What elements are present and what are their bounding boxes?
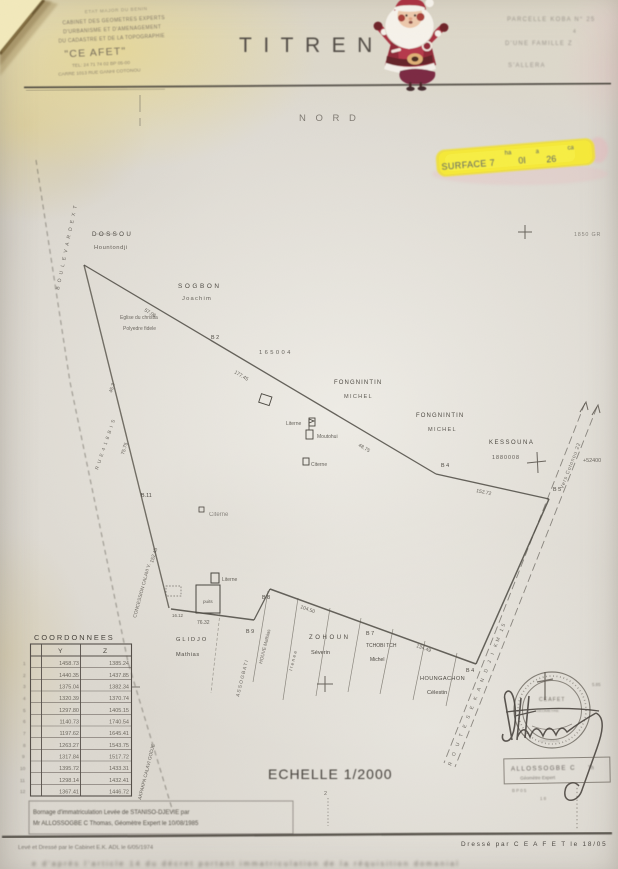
- svg-text:B P 0 5: B P 0 5: [512, 788, 527, 793]
- svg-text:1: 1: [23, 661, 26, 667]
- svg-text:FONGNINTIN: FONGNINTIN: [416, 413, 464, 419]
- svg-text:57.06: 57.06: [143, 308, 157, 320]
- svg-text:a: a: [535, 149, 539, 155]
- svg-text:Michel: Michel: [370, 657, 384, 663]
- svg-text:3: 3: [23, 684, 26, 690]
- svg-text:Eglise du christia: Eglise du christia: [120, 315, 158, 321]
- svg-text:GLIDJO: GLIDJO: [176, 637, 208, 643]
- svg-text:48.75: 48.75: [357, 443, 371, 455]
- svg-text:Citerne: Citerne: [311, 462, 327, 468]
- svg-text:104.50: 104.50: [299, 604, 316, 615]
- svg-text:B 5: B 5: [553, 487, 561, 493]
- svg-text:ca: ca: [567, 145, 574, 152]
- svg-text:Z: Z: [103, 648, 107, 655]
- svg-text:"CE AFET": "CE AFET": [64, 45, 127, 60]
- svg-text:1 8: 1 8: [540, 796, 547, 801]
- svg-text:1197.62: 1197.62: [60, 731, 79, 737]
- svg-text:GEOMETRE: GEOMETRE: [536, 708, 559, 713]
- svg-text:10: 10: [20, 766, 26, 772]
- svg-text:1432.41: 1432.41: [109, 778, 129, 784]
- svg-text:1320.39: 1320.39: [59, 696, 79, 702]
- svg-text:1740.54: 1740.54: [109, 720, 129, 726]
- svg-text:AKPAKPA CALAVI GODJE: AKPAKPA CALAVI GODJE: [137, 743, 157, 800]
- svg-text:12: 12: [20, 789, 26, 795]
- svg-text:D'UNE FAMILLE Z: D'UNE FAMILLE Z: [505, 41, 573, 47]
- svg-text:A S S O G B A T I: A S S O G B A T I: [235, 660, 250, 698]
- svg-text:165004: 165004: [259, 350, 293, 356]
- svg-text:COTONOU: COTONOU: [540, 739, 560, 743]
- svg-text:DU CADASTRE ET DE LA TOPOGRAPH: DU CADASTRE ET DE LA TOPOGRAPHIE: [58, 33, 165, 45]
- svg-text:PARCELLE KOBA N° 25: PARCELLE KOBA N° 25: [507, 17, 595, 23]
- svg-text:Moutohui: Moutohui: [317, 434, 338, 440]
- svg-text:Vers Cotonou 22: Vers Cotonou 22: [559, 442, 582, 490]
- svg-text:1375.04: 1375.04: [59, 685, 79, 691]
- svg-text:B 4: B 4: [441, 463, 449, 469]
- svg-text:B 7: B 7: [366, 631, 374, 637]
- svg-text:S'ALLERA: S'ALLERA: [508, 63, 546, 69]
- svg-text:I r e n e e: I r e n e e: [288, 650, 299, 671]
- svg-text:152.45: 152.45: [149, 547, 159, 564]
- svg-text:1437.85: 1437.85: [109, 673, 129, 679]
- svg-text:Mathias: Mathias: [176, 652, 200, 658]
- svg-text:R O U T E S E K A N D J I: R O U T E S E K A N D J I KM 15: [447, 620, 508, 766]
- svg-text:ha: ha: [504, 150, 512, 157]
- svg-text:ETAT MAJOR DU BENIN: ETAT MAJOR DU BENIN: [85, 6, 148, 14]
- svg-text:Géomètre Expert: Géomètre Expert: [520, 775, 556, 781]
- svg-text:152.72: 152.72: [476, 488, 492, 497]
- svg-text:CEAFET: CEAFET: [539, 697, 565, 703]
- svg-text:45.3: 45.3: [108, 382, 117, 393]
- svg-text:1298.14: 1298.14: [59, 778, 79, 784]
- svg-text:Hountondji: Hountondji: [94, 245, 128, 251]
- svg-text:Joachim: Joachim: [182, 296, 212, 302]
- svg-text:6: 6: [23, 719, 26, 725]
- svg-text:B O U L E V A R D E X T: B O U L E V A R D E X T: [55, 204, 79, 291]
- svg-text:1140.73: 1140.73: [60, 720, 79, 726]
- svg-text:4: 4: [23, 696, 26, 702]
- svg-text:Literne: Literne: [286, 421, 302, 427]
- svg-text:CABINET DES GEOMETRES EXPERTS: CABINET DES GEOMETRES EXPERTS: [62, 15, 165, 26]
- svg-text:KESSOUNA: KESSOUNA: [489, 440, 534, 446]
- svg-text:1458.73: 1458.73: [59, 661, 79, 667]
- svg-text:Literne: Literne: [222, 577, 238, 583]
- svg-text:1543.75: 1543.75: [109, 743, 129, 749]
- svg-text:FONGNINTIN: FONGNINTIN: [334, 380, 382, 386]
- svg-text:Y: Y: [58, 648, 63, 655]
- svg-text:MICHEL: MICHEL: [344, 394, 373, 400]
- svg-text:B 2: B 2: [211, 335, 219, 341]
- svg-text:B 8: B 8: [262, 595, 270, 601]
- svg-text:Th: Th: [588, 765, 594, 771]
- svg-text:1395.72: 1395.72: [59, 766, 79, 772]
- svg-text:1433.31: 1433.31: [109, 766, 129, 772]
- svg-text:75.75: 75.75: [120, 442, 129, 456]
- svg-text:5: 5: [23, 708, 26, 714]
- svg-text:SOGBON: SOGBON: [178, 283, 222, 290]
- svg-text:Levé et Dressé par le Cabinet: Levé et Dressé par le Cabinet E.K. ADL l…: [18, 845, 154, 851]
- svg-text:e d'après l'article 14 du décr: e d'après l'article 14 du décret portant…: [32, 859, 460, 868]
- svg-text:1880008: 1880008: [492, 455, 520, 461]
- svg-text:1517.72: 1517.72: [109, 755, 129, 761]
- svg-text:CARRE 1013 RUE GANHI COTONOU: CARRE 1013 RUE GANHI COTONOU: [58, 67, 141, 77]
- svg-text:1367.41: 1367.41: [59, 790, 79, 796]
- svg-text:9: 9: [22, 754, 25, 760]
- svg-text:B.11: B.11: [141, 493, 152, 499]
- svg-text:ZOHOUN: ZOHOUN: [309, 635, 351, 641]
- svg-text:1446.72: 1446.72: [109, 790, 129, 796]
- svg-text:11: 11: [20, 778, 25, 784]
- svg-text:1370.74: 1370.74: [109, 696, 129, 702]
- svg-text:TEL: 24 71 74 02 BP 05-00: TEL: 24 71 74 02 BP 05-00: [72, 60, 131, 69]
- svg-text:177.45: 177.45: [233, 370, 249, 383]
- svg-text:5.85: 5.85: [592, 682, 601, 687]
- svg-text:DOSSOU: DOSSOU: [92, 231, 133, 238]
- svg-text:1850 GR: 1850 GR: [574, 232, 601, 238]
- svg-text:COORDONNEES: COORDONNEES: [34, 633, 115, 642]
- svg-text:16.12: 16.12: [172, 613, 184, 618]
- svg-text:MICHEL: MICHEL: [428, 427, 457, 433]
- svg-text:TCHOBI TCH: TCHOBI TCH: [366, 643, 397, 649]
- svg-text:1645.41: 1645.41: [109, 731, 129, 737]
- svg-text:D'URBANISME ET D'AMENAGEMENT: D'URBANISME ET D'AMENAGEMENT: [63, 24, 161, 35]
- svg-text:1385.24: 1385.24: [109, 661, 129, 667]
- svg-text:1263.27: 1263.27: [59, 743, 79, 749]
- svg-text:1382.34: 1382.34: [109, 685, 129, 691]
- svg-text:+52400: +52400: [583, 458, 601, 464]
- svg-text:HOUNGACHON: HOUNGACHON: [420, 676, 465, 682]
- svg-text:ALLOSSOGBE C: ALLOSSOGBE C: [511, 765, 576, 773]
- svg-text:Mr ALLOSSOGBE C Thomas, Géomèt: Mr ALLOSSOGBE C Thomas, Géomètre Expert …: [33, 821, 199, 827]
- svg-text:1297.80: 1297.80: [59, 708, 79, 714]
- svg-text:R U E 4 1 8 B I S: R U E 4 1 8 B I S: [94, 418, 117, 471]
- svg-text:26: 26: [546, 154, 557, 165]
- svg-text:1405.15: 1405.15: [109, 708, 129, 714]
- svg-text:1317.84: 1317.84: [59, 755, 79, 761]
- svg-text:N O R D: N O R D: [299, 113, 359, 124]
- svg-text:SURFACE 7: SURFACE 7: [441, 158, 495, 172]
- svg-text:Célestin: Célestin: [427, 690, 447, 696]
- svg-text:134.49: 134.49: [415, 643, 432, 654]
- svg-text:76.32: 76.32: [197, 620, 210, 626]
- svg-text:8: 8: [23, 743, 26, 749]
- svg-text:1440.35: 1440.35: [59, 673, 79, 679]
- svg-text:B 9: B 9: [246, 629, 254, 635]
- svg-text:2: 2: [23, 673, 26, 679]
- svg-text:7: 7: [23, 731, 26, 737]
- svg-text:HOUVE Mathias: HOUVE Mathias: [258, 628, 272, 664]
- svg-text:0I: 0I: [518, 155, 526, 166]
- svg-text:2: 2: [324, 791, 327, 797]
- svg-text:B 4: B 4: [466, 668, 474, 674]
- svg-text:Polyedre fidele: Polyedre fidele: [123, 326, 156, 332]
- svg-text:Citerne: Citerne: [209, 512, 229, 518]
- svg-text:Dressé par C E A F E T le 18: Dressé par C E A F E T le 18/05: [461, 841, 608, 848]
- svg-text:4: 4: [573, 29, 577, 35]
- svg-text:Séverin: Séverin: [311, 650, 330, 656]
- svg-text:CONCESSION CALAVI V.: CONCESSION CALAVI V.: [132, 563, 152, 618]
- svg-text:ECHELLE 1/2000: ECHELLE 1/2000: [268, 766, 393, 782]
- svg-text:TITREN: TITREN: [239, 34, 384, 57]
- svg-text:Bornage d'immatriculation Levé: Bornage d'immatriculation Levée de STANI…: [33, 810, 189, 816]
- svg-text:puits: puits: [203, 599, 213, 604]
